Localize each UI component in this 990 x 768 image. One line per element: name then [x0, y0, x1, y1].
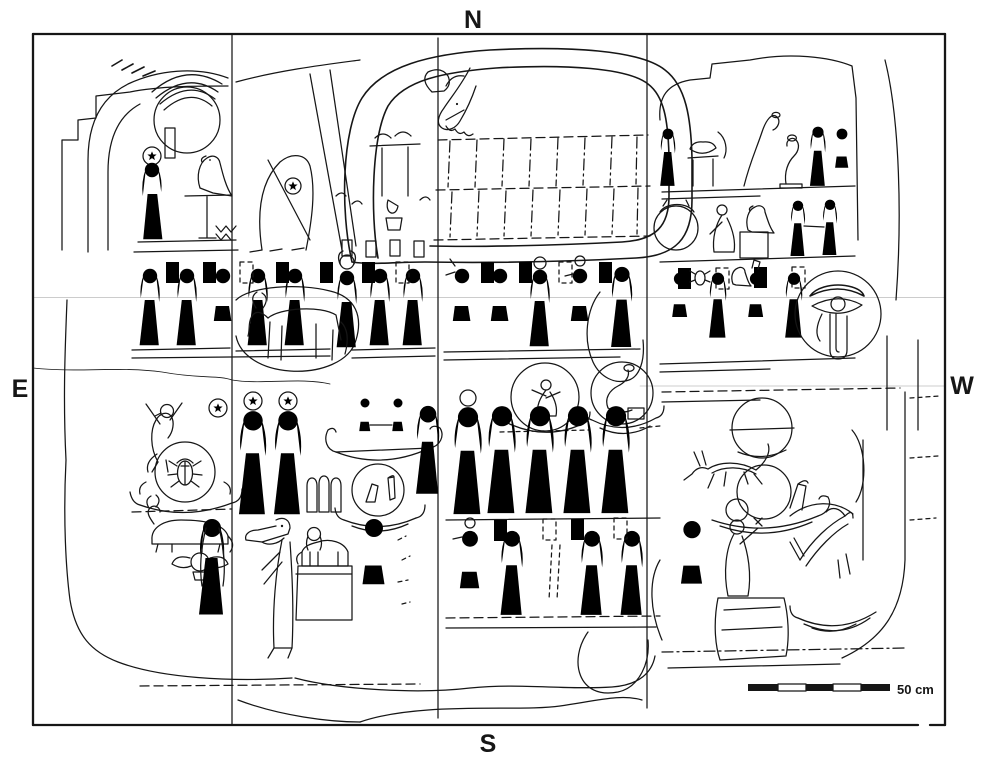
- deity-figure: [818, 200, 838, 257]
- deity-figure: [573, 531, 603, 618]
- deity-figure: [133, 269, 160, 348]
- disk-crowned-figure: [444, 390, 482, 517]
- photo-seams: [33, 298, 945, 387]
- deity-figure: [613, 531, 643, 618]
- figure-plate: 50 cm N S E W: [0, 0, 990, 768]
- name-plaque: [494, 520, 507, 541]
- cobra-icon: [780, 135, 802, 188]
- falcon-on-plinth-icon: [740, 206, 774, 258]
- sun-disk-vignette: [88, 60, 313, 252]
- deity-figure: [655, 129, 675, 188]
- bird-icon: [732, 267, 751, 286]
- compass-south-label: S: [480, 730, 497, 758]
- deity-figure: [440, 269, 471, 347]
- hand-icon: [152, 75, 222, 110]
- kneeler-with-disk-icon: [726, 499, 762, 596]
- top-right-registers: [654, 112, 855, 372]
- ceiling-drawing: 50 cm N S E W: [0, 0, 990, 768]
- name-plaque: [571, 519, 584, 540]
- sun-disk-barque-icon: [712, 465, 830, 533]
- disk-with-pair-on-barque-icon: [335, 464, 425, 531]
- scale-bar: 50 cm: [748, 682, 934, 697]
- deity-figure: [444, 407, 482, 517]
- deity-figure: [142, 163, 169, 242]
- sphinx-on-pedestal-icon: [296, 528, 352, 621]
- deity-figure: [516, 406, 554, 516]
- lower-central-registers: [444, 390, 660, 628]
- deity-figure: [779, 273, 802, 340]
- deity-figure: [351, 399, 370, 448]
- decan-serpent-icon: [584, 362, 664, 434]
- falcon-on-standard-icon: [185, 156, 232, 238]
- deity-figure: [826, 129, 849, 188]
- serpent-grid: [434, 135, 650, 240]
- deity-figure: [446, 531, 480, 617]
- mummiform-figures: [307, 476, 341, 512]
- deity-figure: [558, 269, 589, 347]
- baboon-icon: [146, 403, 182, 472]
- beetle-icon: [690, 271, 710, 285]
- deity-figure: [408, 406, 439, 497]
- boat-hull-icon: [790, 606, 876, 631]
- scarab-zone: [130, 292, 347, 580]
- barque-zone: [230, 392, 442, 531]
- deity-figure: [786, 201, 806, 258]
- deity-figure: [737, 273, 763, 339]
- scale-bar-label: 50 cm: [897, 682, 934, 697]
- coiled-serpent: [345, 49, 692, 264]
- deity-figure: [241, 269, 268, 348]
- hathor-figure: [330, 251, 357, 350]
- deity-figure: [666, 521, 703, 615]
- feline-figure: [260, 156, 313, 250]
- deity-figure: [330, 271, 357, 350]
- compass-west-label: W: [950, 372, 974, 400]
- compass-east-label: E: [12, 375, 29, 403]
- crocodile-deity-icon: [246, 518, 293, 658]
- compass-north-label: N: [464, 6, 482, 34]
- sun-disk-chord-icon: [730, 398, 794, 458]
- goddess-with-star: [142, 147, 169, 242]
- deity-figure: [384, 399, 403, 448]
- winged-vessel-icon: [172, 553, 228, 580]
- wedjat-eye-icon: [795, 271, 881, 359]
- offering-bowl-icon: [688, 132, 726, 186]
- jackal-headed-figure: [440, 259, 471, 347]
- sun-disk-icon: [154, 87, 220, 153]
- deity-figure: [703, 273, 726, 340]
- bottom-right-zone: [662, 388, 905, 668]
- falcon-headed-figure: [446, 518, 480, 617]
- deity-figure: [265, 411, 301, 517]
- deity-figure: [493, 531, 523, 618]
- deity-figure: [191, 519, 225, 618]
- falcon-headed-figure: [558, 256, 589, 347]
- kneeling-figure: [710, 205, 735, 252]
- deity-figure: [661, 273, 687, 339]
- offering-scene: [250, 70, 430, 257]
- snake-icon: [744, 112, 780, 186]
- deity-figure: [805, 127, 826, 188]
- deity-figure: [478, 406, 516, 516]
